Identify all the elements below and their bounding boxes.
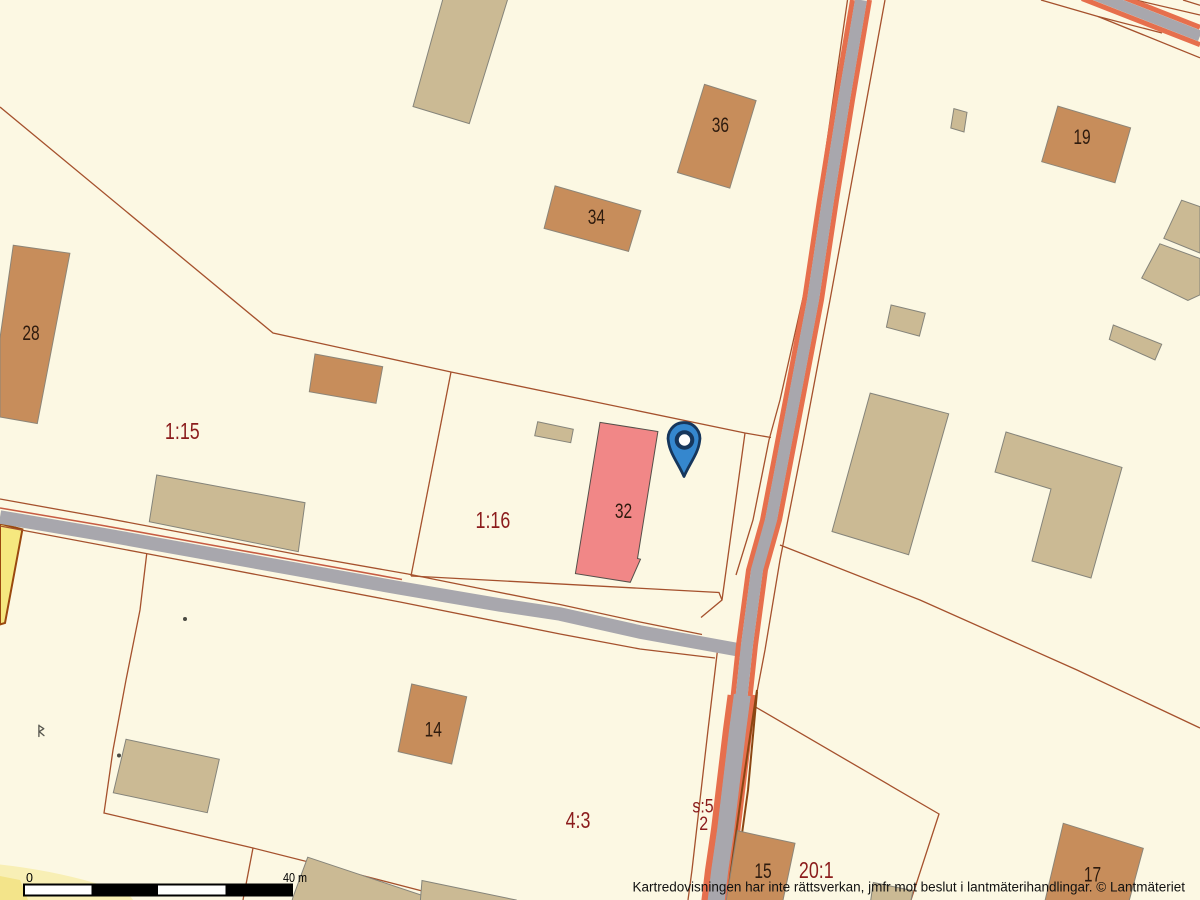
svg-text:19: 19 <box>1073 125 1090 149</box>
svg-text:28: 28 <box>22 321 39 345</box>
svg-text:36: 36 <box>712 113 729 137</box>
svg-text:1:15: 1:15 <box>165 419 200 445</box>
svg-text:34: 34 <box>588 205 605 229</box>
svg-text:2: 2 <box>699 813 708 835</box>
svg-text:0: 0 <box>26 871 33 885</box>
svg-text:4:3: 4:3 <box>566 808 591 834</box>
svg-text:40 m: 40 m <box>283 871 307 885</box>
svg-text:1:16: 1:16 <box>476 508 511 534</box>
svg-text:14: 14 <box>425 717 442 741</box>
svg-text:32: 32 <box>615 499 632 523</box>
svg-text:Kartredovisningen har inte rät: Kartredovisningen har inte rättsverkan, … <box>633 880 1186 895</box>
